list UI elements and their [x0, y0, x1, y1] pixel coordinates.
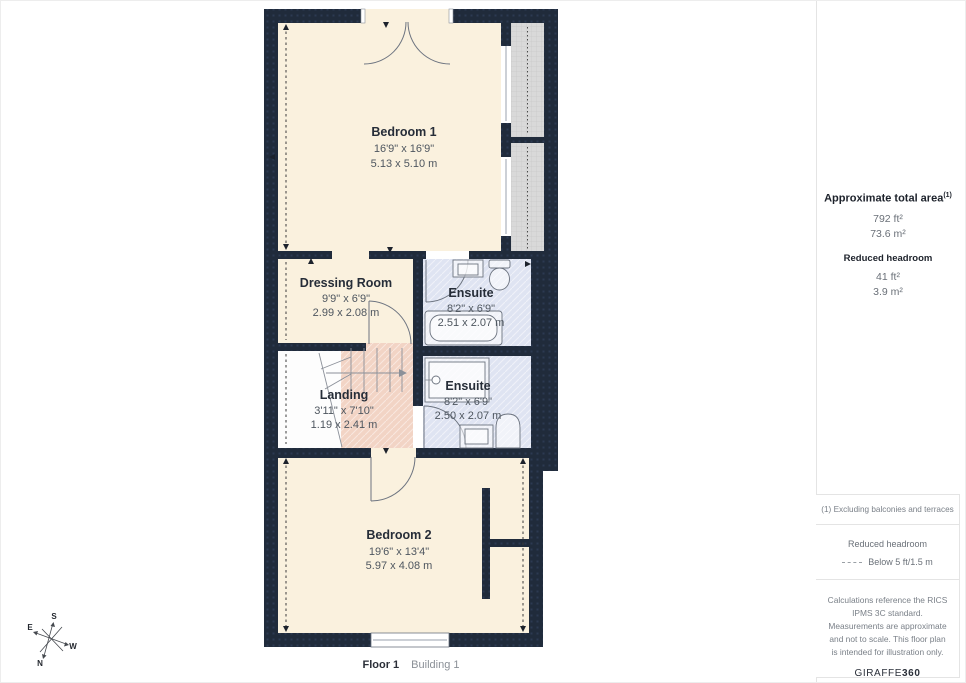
brand-name-part2: 360 [902, 668, 921, 679]
legend-row: Below 5 ft/1.5 m [816, 557, 959, 567]
disclaimer-text: Calculations reference the RICS IPMS 3C … [816, 580, 959, 659]
dashed-line-swatch [842, 562, 862, 563]
compass-s-label: S [51, 612, 57, 621]
room-dims-m-landing: 1.19 x 2.41 m [311, 419, 378, 431]
floor-label: Floor 1 [363, 659, 400, 671]
room-dims-m-bedroom2: 5.97 x 4.08 m [366, 560, 433, 572]
legend-section: Reduced headroom Below 5 ft/1.5 m [816, 525, 959, 580]
total-area-heading: Approximate total area(1) [817, 192, 959, 205]
ensuite2-door-gap [413, 406, 423, 448]
footnote-text: (1) Excluding balconies and terraces [821, 505, 953, 514]
total-area-heading-text: Approximate total area [824, 193, 943, 205]
room-dims-m-ensuite2: 2.50 x 2.07 m [435, 410, 502, 422]
compass-rose: S E W N [23, 607, 83, 669]
floor-caption: Floor 1 Building 1 [264, 659, 558, 671]
bedroom1-door-recess [361, 9, 453, 23]
room-dims-ft-ensuite1: 8'2" x 6'9" [447, 303, 495, 315]
room-dims-m-dressing: 2.99 x 2.08 m [313, 307, 380, 319]
room-dims-m-bedroom1: 5.13 x 5.10 m [371, 158, 438, 170]
total-area-m: 73.6 m² [817, 227, 959, 242]
dressing-door-gap [366, 343, 413, 351]
disclaimer-section: Calculations reference the RICS IPMS 3C … [816, 580, 959, 679]
bedroom2-door-gap [371, 448, 416, 458]
room-label-bedroom1: Bedroom 1 [371, 125, 436, 139]
ensuite1-door-gap [426, 251, 469, 259]
giraffe360-logo: GIRAFFE360 [816, 668, 959, 679]
notes-box: (1) Excluding balconies and terraces Red… [816, 494, 960, 678]
room-label-bedroom2: Bedroom 2 [366, 528, 431, 542]
total-area-footnote-marker: (1) [943, 192, 952, 199]
room-dims-ft-ensuite2: 8'2" x 6'9" [444, 396, 492, 408]
floor-plan-page: Bedroom 1 16'9" x 16'9" 5.13 x 5.10 m Dr… [0, 0, 966, 683]
room-label-landing: Landing [320, 388, 369, 402]
room-dims-ft-dressing: 9'9" x 6'9" [322, 293, 370, 305]
compass-e-label: E [27, 623, 33, 632]
room-dims-ft-bedroom1: 16'9" x 16'9" [374, 143, 434, 155]
dressing-opening [332, 251, 369, 259]
building-label: Building 1 [411, 659, 459, 671]
brand-name-part1: GIRAFFE [854, 668, 902, 679]
room-dims-ft-landing: 3'11" x 7'10" [314, 405, 374, 417]
toilet-icon [489, 260, 510, 268]
compass-w-label: W [69, 642, 77, 651]
legend-title: Reduced headroom [816, 525, 959, 549]
room-label-ensuite2: Ensuite [445, 379, 490, 393]
room-label-dressing: Dressing Room [300, 276, 392, 290]
legend-label: Below 5 ft/1.5 m [868, 557, 933, 567]
room-dims-ft-bedroom2: 19'6" x 13'4" [369, 546, 429, 558]
room-label-ensuite1: Ensuite [448, 286, 493, 300]
reduced-headroom-m: 3.9 m² [817, 285, 959, 300]
reduced-headroom-heading: Reduced headroom [817, 253, 959, 264]
bedroom2-partition [482, 488, 490, 599]
bedroom2-window [371, 633, 449, 647]
area-summary: Approximate total area(1) 792 ft² 73.6 m… [817, 192, 959, 300]
compass-n-label: N [37, 659, 43, 668]
total-area-ft: 792 ft² [817, 212, 959, 227]
footnote-section: (1) Excluding balconies and terraces [816, 495, 959, 525]
room-dims-m-ensuite1: 2.51 x 2.07 m [438, 317, 505, 329]
reduced-headroom-ft: 41 ft² [817, 270, 959, 285]
